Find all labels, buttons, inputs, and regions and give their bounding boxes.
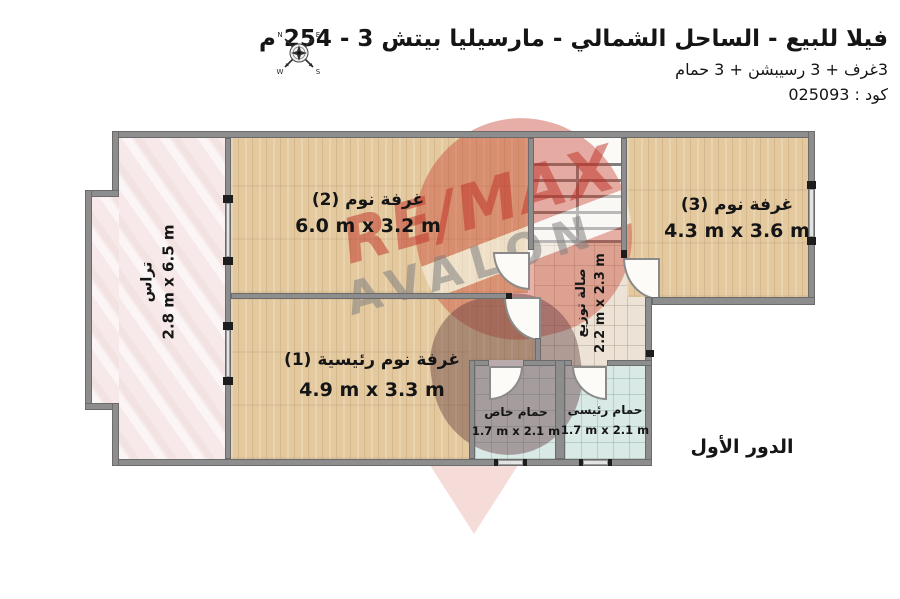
bathroom-vent-window — [498, 460, 523, 465]
window-marker — [494, 459, 498, 466]
master-bathroom-dimensions: 1.7 m x 2.1 m — [561, 423, 649, 437]
bedroom2-label: غرفة نوم (2) — [312, 190, 424, 210]
wall-end-cap — [646, 350, 654, 357]
floor-name-label: الدور الأول — [691, 436, 794, 458]
wall — [112, 131, 119, 197]
svg-text:E: E — [316, 31, 320, 39]
svg-text:N: N — [277, 31, 282, 39]
master-bedroom-dimensions: 4.9 m x 3.3 m — [299, 379, 445, 401]
window-marker — [223, 257, 233, 265]
hall-label: صالة توزيع 2.2 m x 2.3 m — [573, 253, 611, 353]
wall — [621, 138, 627, 258]
window-marker — [807, 181, 816, 189]
stair-divider — [576, 163, 579, 243]
wall — [112, 403, 119, 466]
window-marker — [608, 459, 612, 466]
staircase — [534, 138, 621, 243]
window-marker — [579, 459, 583, 466]
page-subtitle: 3غرف + 3 رسيبشن + 3 حمام — [675, 60, 888, 79]
hall-name: صالة توزيع — [573, 253, 592, 353]
window-marker — [223, 322, 233, 330]
wall — [645, 297, 652, 466]
wall — [555, 360, 565, 459]
wall — [652, 297, 815, 305]
private-bathroom-label: حمام خاص — [484, 405, 547, 419]
compass-rose-icon: N E S W — [272, 26, 326, 80]
terrace-dimensions: 2.8 m x 6.5 m — [158, 225, 180, 340]
wall-end-cap — [621, 250, 627, 258]
bedroom3-label: غرفة نوم (3) — [681, 195, 793, 215]
bathroom-vent-window — [583, 460, 608, 465]
balloon-tail-icon — [428, 462, 520, 534]
wall — [528, 138, 534, 250]
window-marker — [223, 195, 233, 203]
master-bedroom-label: غرفة نوم رئيسية (1) — [284, 350, 460, 370]
listing-code: كود : 025093 — [788, 85, 888, 104]
private-bathroom-dimensions: 1.7 m x 2.1 m — [472, 424, 560, 438]
svg-text:S: S — [316, 68, 321, 76]
window-marker — [523, 459, 527, 466]
wall — [112, 131, 815, 138]
compass-icon: N E S W — [272, 26, 326, 80]
bedroom3-dimensions: 4.3 m x 3.6 m — [664, 220, 810, 242]
terrace-window — [226, 330, 230, 377]
wall — [469, 360, 475, 459]
terrace-window — [226, 203, 230, 257]
wall — [231, 293, 512, 299]
terrace-name: تراس — [136, 225, 158, 340]
terrace-floor-extension — [92, 197, 119, 403]
master-bathroom-label: حمام رئيسى — [568, 403, 643, 417]
terrace-label: تراس 2.8 m x 6.5 m — [136, 225, 180, 340]
svg-text:W: W — [277, 68, 284, 76]
wall — [112, 459, 652, 466]
hall-dimensions: 2.2 m x 2.3 m — [592, 253, 611, 353]
window-marker — [223, 377, 233, 385]
hall-floor-extension — [627, 297, 645, 366]
wall — [607, 360, 652, 366]
page-title: فيلا للبيع - الساحل الشمالي - مارسيليا ب… — [259, 26, 888, 52]
wall — [85, 190, 92, 410]
bedroom2-dimensions: 6.0 m x 3.2 m — [295, 215, 441, 237]
wall-end-cap — [506, 293, 512, 299]
floorplan-page: فيلا للبيع - الساحل الشمالي - مارسيليا ب… — [0, 0, 900, 599]
